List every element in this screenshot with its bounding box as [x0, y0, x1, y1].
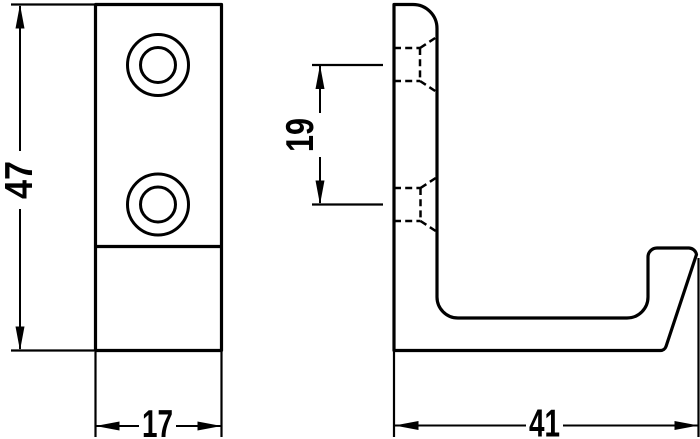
screw-hole-bottom-outer [128, 174, 189, 235]
dimension-depth: 41 [394, 258, 699, 439]
hidden-hole-bottom [394, 178, 437, 232]
dimension-value-depth: 41 [529, 403, 560, 439]
hook-profile-outline [394, 5, 697, 351]
front-view [96, 5, 222, 351]
arrow-down-icon [16, 327, 25, 351]
dimension-hole-spacing: 19 [279, 65, 383, 205]
technical-drawing: 47 19 17 41 [0, 0, 700, 439]
hidden-countersink-line [420, 81, 436, 92]
dimension-value-hole-spacing: 19 [279, 118, 322, 152]
screw-hole-top-outer [128, 35, 189, 96]
hidden-countersink-line [421, 221, 437, 232]
screw-hole-top-inner [141, 48, 176, 83]
arrow-up-icon [16, 5, 25, 29]
screw-hole-bottom-inner [141, 187, 176, 222]
arrow-left-icon [395, 421, 419, 430]
hidden-hole-top [394, 38, 436, 92]
arrow-left-icon [96, 422, 120, 431]
arrow-right-icon [675, 421, 699, 430]
dimension-height: 47 [0, 5, 94, 351]
arrow-right-icon [198, 422, 222, 431]
dimension-width: 17 [96, 352, 222, 439]
hidden-countersink-line [421, 178, 437, 189]
side-view [394, 5, 697, 351]
arrow-up-icon [316, 65, 325, 89]
dimension-value-width: 17 [142, 403, 173, 439]
hidden-countersink-line [420, 38, 436, 49]
plate-outline [96, 5, 222, 351]
dimension-value-height: 47 [0, 161, 41, 199]
arrow-down-icon [316, 181, 325, 205]
